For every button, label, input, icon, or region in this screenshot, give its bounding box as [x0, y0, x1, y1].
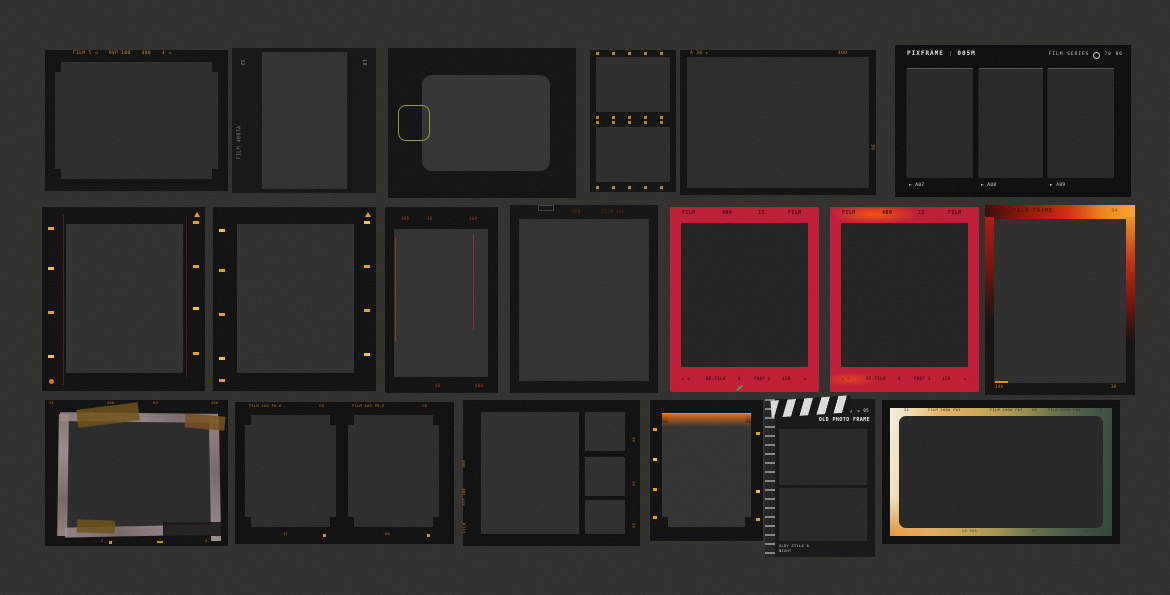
- edge-mark: [995, 381, 1008, 383]
- film-frame-19-top-label: 99: [1032, 409, 1037, 413]
- film-frame-14-counter: 4: [205, 540, 208, 544]
- film-frame-16-edge-text: 99: [631, 437, 635, 442]
- edge-mark: [219, 313, 225, 316]
- film-frame-13-top-number: 34: [1111, 209, 1118, 214]
- film-frame-19-top-label: FILM 2000 FW3: [1048, 409, 1081, 413]
- triangle-marker-icon: [194, 212, 200, 217]
- edge-mark: [364, 353, 370, 356]
- film-frame-05-side-number: 36: [869, 144, 874, 150]
- tape-dark-bottom-right: [163, 522, 221, 536]
- film-frame-04-sprocket-ticks: [596, 186, 670, 189]
- film-frame-11-footer: RE:FILM: [706, 377, 726, 381]
- film-frame-19-bottom-label: AA 99A: [1084, 530, 1099, 534]
- film-frame-13-burn-right: [1126, 217, 1135, 347]
- film-frame-01-header: FILM 5 ◁ RVP 100 400 4 ◁: [73, 52, 171, 57]
- film-frame-11-footer: ►: [804, 377, 807, 381]
- film-frame-15-counter-1: 17: [283, 533, 288, 537]
- film-frame-01-label: FILM 5 ◁: [73, 52, 98, 57]
- film-frame-09-code: 400: [475, 384, 483, 388]
- film-frame-12-label: 400: [882, 211, 892, 216]
- edge-mark: [48, 227, 54, 230]
- film-frame-06-series-label: FILM SERIES: [1049, 53, 1090, 58]
- edge-mark: [323, 534, 326, 537]
- film-frame-11-label: 400: [722, 211, 732, 216]
- film-frame-07: [42, 207, 205, 391]
- film-frame-09-leak-line: [395, 237, 396, 342]
- film-frame-02-window: [262, 52, 347, 189]
- film-frame-18-grunge-edge: [765, 399, 775, 557]
- film-frame-02: 32 18 FILM 400TA: [232, 48, 376, 193]
- film-frame-14-code: 400: [211, 402, 219, 406]
- film-frame-14: 15 400 99 400 2 4: [45, 400, 228, 546]
- edge-mark: [48, 267, 54, 270]
- film-frame-06-panel-3: [1048, 68, 1114, 177]
- film-frame-11-label: 15: [758, 211, 765, 216]
- film-frame-14-counter: 2: [101, 540, 104, 544]
- film-frame-18-photo-2: [779, 488, 867, 541]
- film-frame-14-code: 99: [153, 402, 158, 406]
- film-frame-14-code: 15: [49, 402, 54, 406]
- film-frame-04-window-1: [596, 57, 670, 112]
- film-frame-19-bottom-label: AA 99A: [962, 530, 977, 534]
- film-frame-13-burn-left: [985, 217, 994, 327]
- film-frame-06-code: 005M: [957, 51, 975, 57]
- film-frame-15-counter-2: 08: [385, 533, 390, 537]
- film-frame-18-photo-1: [779, 429, 867, 485]
- tape-strip-left: [57, 414, 69, 536]
- edge-mark: [219, 229, 225, 232]
- film-frame-09: 400 40 400 40 400: [385, 207, 498, 393]
- film-frame-16-edge-text: FILM: [463, 523, 467, 533]
- film-frame-03: [380, 48, 580, 198]
- film-frame-06-series-header: FILM SERIES 70 06: [1049, 52, 1123, 59]
- film-frame-08-window: [237, 224, 354, 373]
- edge-mark: [653, 458, 657, 461]
- film-frame-15-header-2: FILM 400 PH-6: [352, 405, 385, 409]
- film-frame-19: 24 FILM 2000 FW3 FILM 2000 FW3 99 FILM 2…: [882, 400, 1120, 544]
- film-frame-14-photo: [67, 416, 214, 529]
- film-frame-06-caption-3: ► A09: [1050, 184, 1066, 189]
- film-frame-11-footer: ► ⊙: [682, 377, 690, 381]
- film-frame-12: FILM 400 15 FILM ► ⊙ RE:FILM X PRO? 2 12…: [830, 207, 979, 392]
- film-frame-01-label: 400: [142, 52, 151, 57]
- tape-amber-bottom-left: [77, 519, 115, 533]
- film-frame-17-light-leak: [662, 413, 751, 427]
- film-frame-11-footer: PRO? 2: [754, 377, 771, 381]
- film-frame-03-yellow-tab: [398, 105, 430, 141]
- film-frame-13-bottom-left: 14A: [995, 385, 1003, 389]
- film-frame-02-number-right: 18: [361, 59, 366, 66]
- edge-mark: [219, 379, 225, 382]
- edge-mark: [653, 428, 657, 431]
- edge-mark: [427, 534, 430, 537]
- film-frame-15-window-1: [245, 415, 336, 527]
- film-frame-11-label: FILM: [788, 211, 802, 216]
- film-frame-12-footer-leak: [830, 367, 910, 392]
- edge-mark: [109, 541, 112, 544]
- film-frame-16-edge-text: 99: [631, 481, 635, 486]
- edge-mark: [653, 516, 657, 519]
- film-frame-09-code: 40: [435, 384, 441, 388]
- film-frame-13: FILM FRAME 34 14A 34: [985, 205, 1135, 395]
- film-frame-07-leak-line: [63, 215, 64, 385]
- edge-mark: [157, 541, 163, 543]
- triangle-marker-icon: [365, 212, 371, 217]
- film-frame-06-caption-1: ► A07: [909, 184, 925, 189]
- film-frame-01-label: RVP 100: [109, 52, 131, 57]
- edge-mark: [48, 311, 54, 314]
- film-frame-12-footer: PRO? 2: [914, 377, 931, 381]
- film-frame-06-panel-2: [979, 68, 1043, 177]
- film-frame-05-label-left: A 36 ▸: [690, 52, 709, 57]
- edge-mark: [364, 309, 370, 312]
- film-frame-06-separator: |: [949, 52, 952, 57]
- film-frame-07-window: [66, 224, 183, 373]
- film-frame-11-footer: 120: [782, 377, 790, 381]
- film-frame-02-number-left: 32: [239, 59, 244, 66]
- edge-mark: [364, 265, 370, 268]
- film-frame-18: ► 05 OLD PHOTO FRAME OLDY STYLE 8 NIGHT: [765, 399, 875, 557]
- film-frame-15-window-2: [348, 415, 439, 527]
- film-frame-06: PIXFRAME | 005M FILM SERIES 70 06 ► A07 …: [895, 45, 1131, 197]
- film-frame-15-badge-1: C8: [319, 405, 324, 409]
- film-frame-19-top-label: 8: [1100, 409, 1103, 413]
- film-frame-19-bottom-label: 99: [1032, 530, 1037, 534]
- film-frames-collection-canvas: FILM 5 ◁ RVP 100 400 4 ◁ 32 18 FILM 400T…: [0, 0, 1170, 595]
- edge-mark: [756, 490, 760, 493]
- film-frame-06-panel-1: [907, 68, 973, 177]
- film-frame-06-brand: PIXFRAME: [907, 51, 944, 57]
- film-frame-06-header: PIXFRAME | 005M: [907, 51, 976, 57]
- film-frame-09-code: 400: [469, 217, 477, 221]
- film-frame-13-bottom-right: 34: [1111, 385, 1117, 389]
- edge-mark: [364, 221, 370, 224]
- film-frame-08: [213, 207, 376, 391]
- film-frame-04-sprocket-ticks: [596, 116, 670, 119]
- film-frame-07-leak-line: [186, 217, 187, 377]
- film-frame-11: FILM 400 15 FILM ► ⊙ RE:FILM X PRO? 2 12…: [670, 207, 819, 392]
- film-frame-12-label: FILM: [948, 211, 962, 216]
- film-frame-10-tab: [538, 205, 554, 211]
- film-frame-10-code: 400: [572, 210, 580, 214]
- edge-mark: [49, 379, 54, 384]
- film-frame-05-label-right: 400: [838, 52, 847, 57]
- film-frame-10-window: [519, 219, 649, 381]
- film-frame-15-header-1: FILM 400 PH-6: [249, 405, 282, 409]
- edge-mark: [48, 355, 54, 358]
- film-frame-19-top-label: 24: [904, 409, 909, 413]
- film-frame-17-window: [662, 413, 751, 527]
- film-frame-16-window-small-3: [585, 500, 625, 534]
- film-frame-16-edge-text: 400: [463, 460, 467, 468]
- film-frame-12-footer: 120: [942, 377, 950, 381]
- film-frame-05: A 36 ▸ 400 36: [680, 50, 876, 195]
- green-check-mark: [736, 385, 742, 391]
- film-frame-18-note: NIGHT: [779, 550, 792, 554]
- film-frame-03-window: [422, 75, 550, 171]
- film-frame-18-take-number: ► 05: [858, 409, 869, 413]
- film-frame-01-label: 4 ◁: [162, 52, 171, 57]
- edge-mark: [756, 518, 760, 521]
- film-frame-01-window: [55, 62, 218, 179]
- film-frame-18-note: OLDY STYLE 8: [779, 545, 809, 549]
- film-frame-04: [590, 50, 676, 192]
- film-frame-09-code: 40: [427, 217, 433, 221]
- film-frame-05-window: [687, 57, 869, 188]
- edge-mark: [193, 352, 199, 355]
- film-frame-18-title: OLD PHOTO FRAME: [819, 418, 870, 423]
- film-frame-15: FILM 400 PH-6 C8 FILM 400 PH-6 C8 17 08: [235, 402, 454, 544]
- film-frame-06-series-number: 70 06: [1104, 53, 1123, 58]
- film-frame-09-leak-line: [473, 235, 474, 330]
- reel-icon: [1093, 52, 1100, 59]
- film-frame-19-top-label: FILM 2000 FW3: [990, 409, 1023, 413]
- film-frame-12-label: FILM: [842, 211, 856, 216]
- edge-mark: [193, 221, 199, 224]
- film-frame-12-footer: ►: [964, 377, 967, 381]
- film-frame-02-film-label: FILM 400TA: [238, 125, 243, 159]
- film-frame-11-footer: X: [738, 377, 741, 381]
- edge-mark: [219, 357, 225, 360]
- film-frame-16: 400 RVP 100 FILM 99 99 99: [463, 400, 640, 546]
- film-frame-16-window-large: [481, 412, 579, 534]
- film-frame-06-caption-2: ► A08: [981, 184, 997, 189]
- film-frame-10: 400 FILM 400: [510, 205, 658, 393]
- edge-mark: [193, 265, 199, 268]
- film-frame-19-window: [899, 416, 1103, 528]
- film-frame-04-sprocket-ticks: [596, 52, 670, 55]
- film-frame-11-label: FILM: [682, 211, 696, 216]
- film-frame-19-top-label: FILM 2000 FW3: [928, 409, 961, 413]
- film-frame-09-code: 400: [401, 217, 409, 221]
- film-frame-16-window-small-1: [585, 412, 625, 451]
- edge-mark: [756, 432, 760, 435]
- film-frame-01: FILM 5 ◁ RVP 100 400 4 ◁: [45, 50, 228, 191]
- film-frame-11-window: [681, 223, 808, 367]
- film-frame-15-badge-2: C8: [422, 405, 427, 409]
- film-frame-04-window-2: [596, 127, 670, 182]
- film-frame-16-window-small-2: [585, 457, 625, 496]
- film-frame-13-title: FILM FRAME: [1013, 209, 1053, 214]
- film-frame-04-sprocket-ticks: [596, 121, 670, 124]
- edge-mark: [219, 269, 225, 272]
- film-frame-16-edge-text: RVP 100: [463, 488, 467, 506]
- edge-mark: [653, 488, 657, 491]
- film-frame-12-window: [841, 223, 968, 367]
- edge-mark: [193, 307, 199, 310]
- clapperboard-icon: [771, 395, 852, 418]
- film-frame-13-window: [994, 219, 1126, 383]
- film-frame-10-code: FILM 400: [602, 210, 624, 214]
- film-frame-17: [650, 400, 763, 541]
- film-frame-12-label: 15: [918, 211, 925, 216]
- film-frame-16-edge-text: 99: [631, 523, 635, 528]
